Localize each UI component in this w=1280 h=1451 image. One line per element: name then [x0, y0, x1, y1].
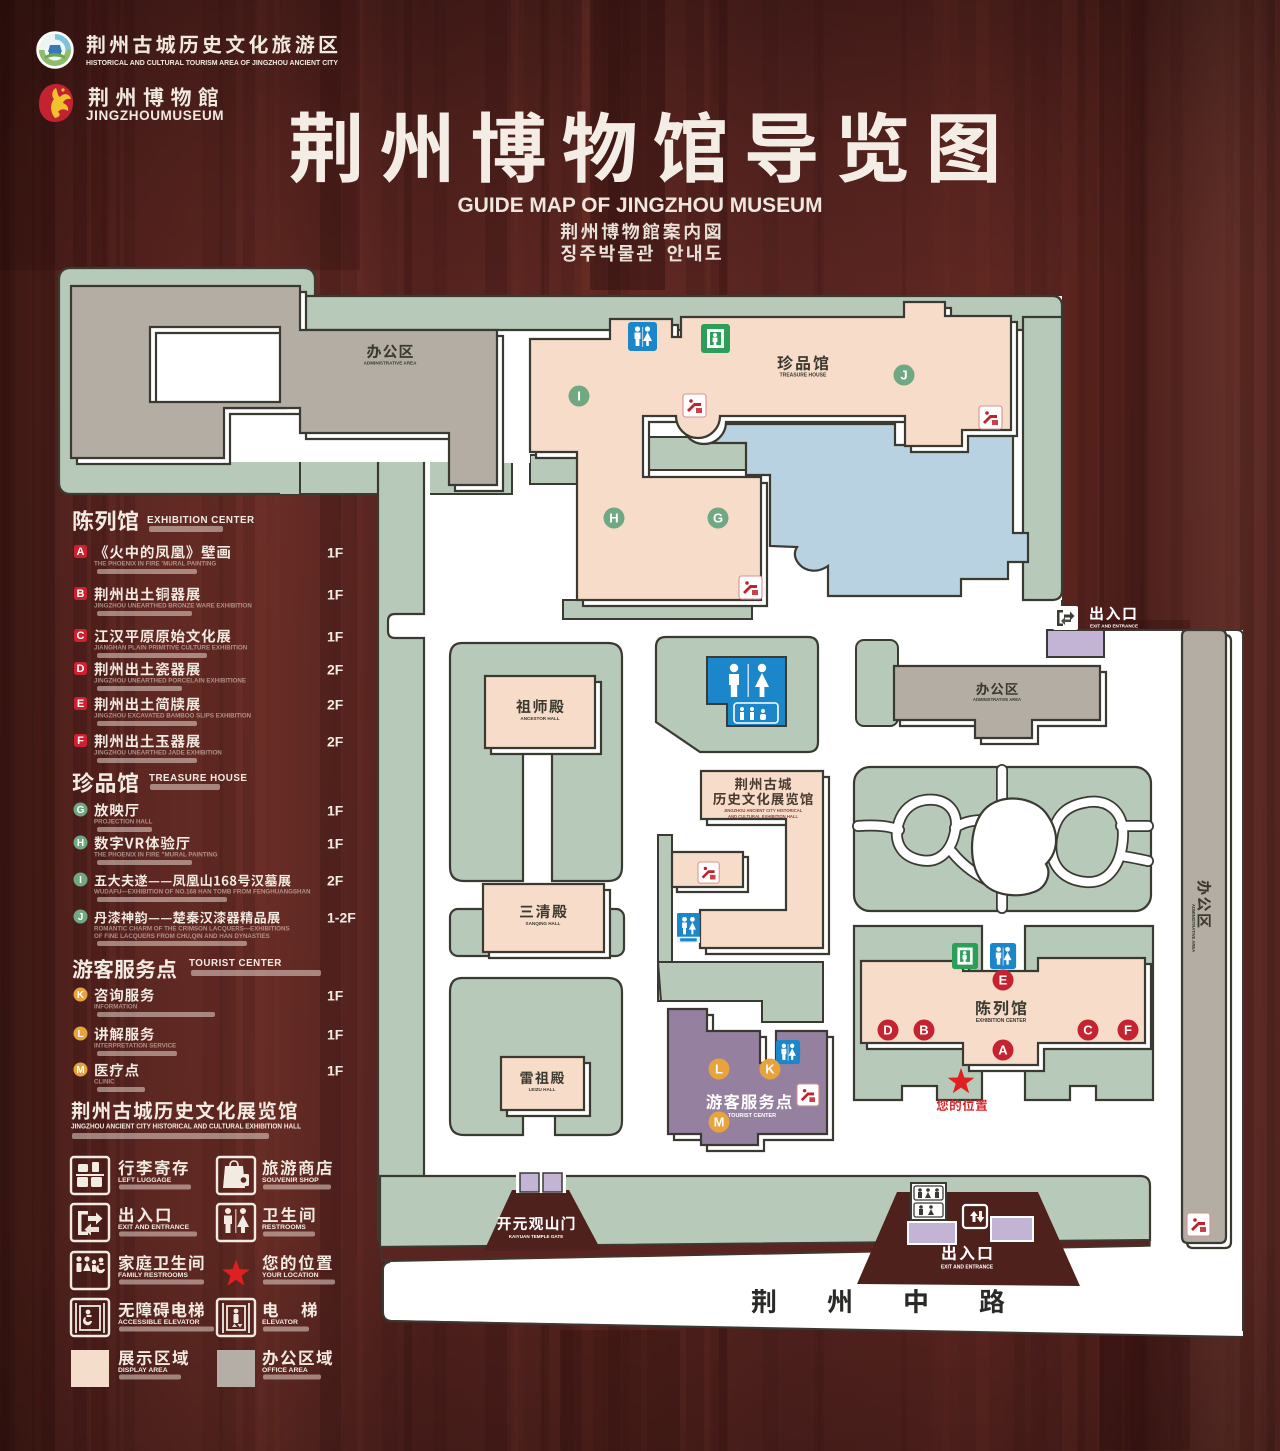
svg-text:C: C: [77, 630, 85, 642]
svg-text:JINGZHOU ANCIENT CITY HISTORIC: JINGZHOU ANCIENT CITY HISTORICAL AND CUL…: [71, 1122, 301, 1131]
svg-text:ANCESTOR HALL: ANCESTOR HALL: [520, 716, 559, 721]
svg-text:A: A: [77, 546, 85, 558]
svg-text:JIANGHAN PLAIN PRIMITIVE CULTU: JIANGHAN PLAIN PRIMITIVE CULTURE EXHIBIT…: [94, 645, 248, 652]
svg-text:ADMINISTRATIVE AREA: ADMINISTRATIVE AREA: [1191, 904, 1196, 952]
svg-text:ELEVATOR: ELEVATOR: [262, 1319, 298, 1326]
svg-text:F: F: [77, 735, 84, 747]
svg-text:FAMILY RESTROOMS: FAMILY RESTROOMS: [118, 1272, 188, 1279]
svg-text:INTERPRETATION SERVICE: INTERPRETATION SERVICE: [94, 1043, 176, 1050]
svg-text:1F: 1F: [327, 836, 344, 852]
svg-text:INFORMATION: INFORMATION: [94, 1004, 138, 1011]
svg-text:LEFT LUGGAGE: LEFT LUGGAGE: [118, 1177, 172, 1184]
svg-text:H: H: [77, 838, 84, 849]
svg-text:EXIT AND ENTRANCE: EXIT AND ENTRANCE: [941, 1265, 994, 1271]
svg-text:1F: 1F: [327, 545, 344, 561]
svg-text:K: K: [77, 990, 85, 1001]
svg-text:1F: 1F: [327, 803, 344, 819]
svg-text:KAIYUAN TEMPLE GATE: KAIYUAN TEMPLE GATE: [509, 1234, 564, 1239]
svg-text:E: E: [77, 698, 84, 710]
svg-text:G: G: [77, 805, 85, 816]
svg-text:M: M: [76, 1065, 84, 1076]
svg-text:ADMINISTRATIVE AREA: ADMINISTRATIVE AREA: [973, 697, 1021, 702]
svg-text:1F: 1F: [327, 1027, 344, 1043]
svg-text:TREASURE HOUSE: TREASURE HOUSE: [149, 773, 247, 784]
svg-text:B: B: [77, 588, 85, 600]
svg-text:D: D: [883, 1023, 892, 1038]
svg-text:2F: 2F: [327, 734, 344, 750]
svg-text:2F: 2F: [327, 662, 344, 678]
svg-text:2F: 2F: [327, 873, 344, 889]
svg-text:EXIT AND ENTRANCE: EXIT AND ENTRANCE: [1090, 624, 1138, 629]
svg-text:TREASURE HOUSE: TREASURE HOUSE: [780, 373, 827, 379]
svg-text:TOURIST CENTER: TOURIST CENTER: [189, 958, 282, 969]
svg-text:EXHIBITION CENTER: EXHIBITION CENTER: [976, 1018, 1027, 1024]
svg-text:TOURIST CENTER: TOURIST CENTER: [728, 1113, 776, 1119]
svg-text:THE PHOENIX IN FIRE ”MURAL PAI: THE PHOENIX IN FIRE ”MURAL PAINTING: [94, 852, 218, 859]
svg-text:1F: 1F: [327, 629, 344, 645]
svg-text:M: M: [714, 1115, 725, 1130]
svg-text:L: L: [77, 1029, 83, 1040]
svg-text:ACCESSIBLE ELEVATOR: ACCESSIBLE ELEVATOR: [118, 1319, 200, 1326]
svg-text:L: L: [715, 1062, 723, 1077]
svg-text:PROJECTION HALL: PROJECTION HALL: [94, 819, 153, 826]
svg-text:J: J: [900, 368, 907, 383]
svg-text:A: A: [998, 1043, 1008, 1058]
svg-text:EXHIBITION CENTER: EXHIBITION CENTER: [147, 515, 255, 526]
svg-text:K: K: [765, 1062, 775, 1077]
svg-text:JINGZHOU EXCAVATED BAMBOO SLIP: JINGZHOU EXCAVATED BAMBOO SLIPS EXHIBITI…: [94, 713, 252, 720]
svg-text:CLINIC: CLINIC: [94, 1079, 115, 1086]
svg-text:EXIT AND ENTRANCE: EXIT AND ENTRANCE: [118, 1224, 190, 1231]
svg-text:WUDAFU—EXHIBITION OF NO.168 HA: WUDAFU—EXHIBITION OF NO.168 HAN TOMB FRO…: [94, 889, 311, 896]
svg-text:I: I: [79, 875, 82, 886]
svg-text:LEIZU HALL: LEIZU HALL: [529, 1087, 556, 1092]
svg-text:E: E: [999, 973, 1008, 988]
svg-text:SANQING HALL: SANQING HALL: [526, 921, 561, 926]
svg-text:D: D: [77, 663, 85, 675]
svg-text:ADMINISTRATIVE AREA: ADMINISTRATIVE AREA: [364, 361, 418, 366]
svg-text:JINGZHOU UNEARTHED PORCELAIN E: JINGZHOU UNEARTHED PORCELAIN EXHIBITIONE: [94, 678, 246, 685]
svg-text:RESTROOMS: RESTROOMS: [262, 1224, 306, 1231]
svg-text:1-2F: 1-2F: [327, 910, 356, 926]
svg-text:JINGZHOU ANCIENT CITY HISTORIC: JINGZHOU ANCIENT CITY HISTORICAL: [724, 808, 803, 813]
svg-text:OFFICE AREA: OFFICE AREA: [262, 1367, 308, 1374]
svg-text:AND CULTURAL EXHIBITION HALL: AND CULTURAL EXHIBITION HALL: [728, 814, 799, 819]
svg-text:JINGZHOU UNEARTHED JADE EXHIBI: JINGZHOU UNEARTHED JADE EXHIBITION: [94, 750, 222, 757]
svg-text:DISPLAY AREA: DISPLAY AREA: [118, 1367, 168, 1374]
svg-text:GUIDE MAP OF JINGZHOU MUSEUM: GUIDE MAP OF JINGZHOU MUSEUM: [458, 193, 823, 217]
svg-text:G: G: [713, 511, 723, 526]
svg-text:H: H: [609, 511, 618, 526]
svg-text:1F: 1F: [327, 587, 344, 603]
svg-text:2F: 2F: [327, 697, 344, 713]
svg-text:C: C: [1083, 1023, 1093, 1038]
svg-text:HISTORICAL AND CULTURAL TOURIS: HISTORICAL AND CULTURAL TOURISM AREA OF …: [86, 58, 338, 67]
svg-text:YOUR LOCATION: YOUR LOCATION: [262, 1272, 319, 1279]
svg-text:F: F: [1124, 1023, 1132, 1038]
svg-text:SOUVENIR SHOP: SOUVENIR SHOP: [262, 1177, 319, 1184]
svg-text:1F: 1F: [327, 1063, 344, 1079]
svg-text:1F: 1F: [327, 988, 344, 1004]
svg-text:OF FINE LACQUERS FROM CHU,QIN: OF FINE LACQUERS FROM CHU,QIN AND HAN DY…: [94, 933, 270, 940]
svg-text:JINGZHOU UNEARTHED BRONZE WARE: JINGZHOU UNEARTHED BRONZE WARE EXHIBITIO…: [94, 603, 252, 610]
svg-text:ROMANTIC CHARM OF THE CRIMSON: ROMANTIC CHARM OF THE CRIMSON LACQUERS—E…: [94, 926, 290, 933]
svg-text:THE PHOENIX IN FIRE ’MURAL PAI: THE PHOENIX IN FIRE ’MURAL PAINTING: [94, 561, 216, 568]
svg-text:I: I: [577, 389, 581, 404]
svg-text:JINGZHOUMUSEUM: JINGZHOUMUSEUM: [86, 108, 224, 123]
svg-text:J: J: [78, 912, 84, 923]
svg-text:B: B: [919, 1023, 928, 1038]
